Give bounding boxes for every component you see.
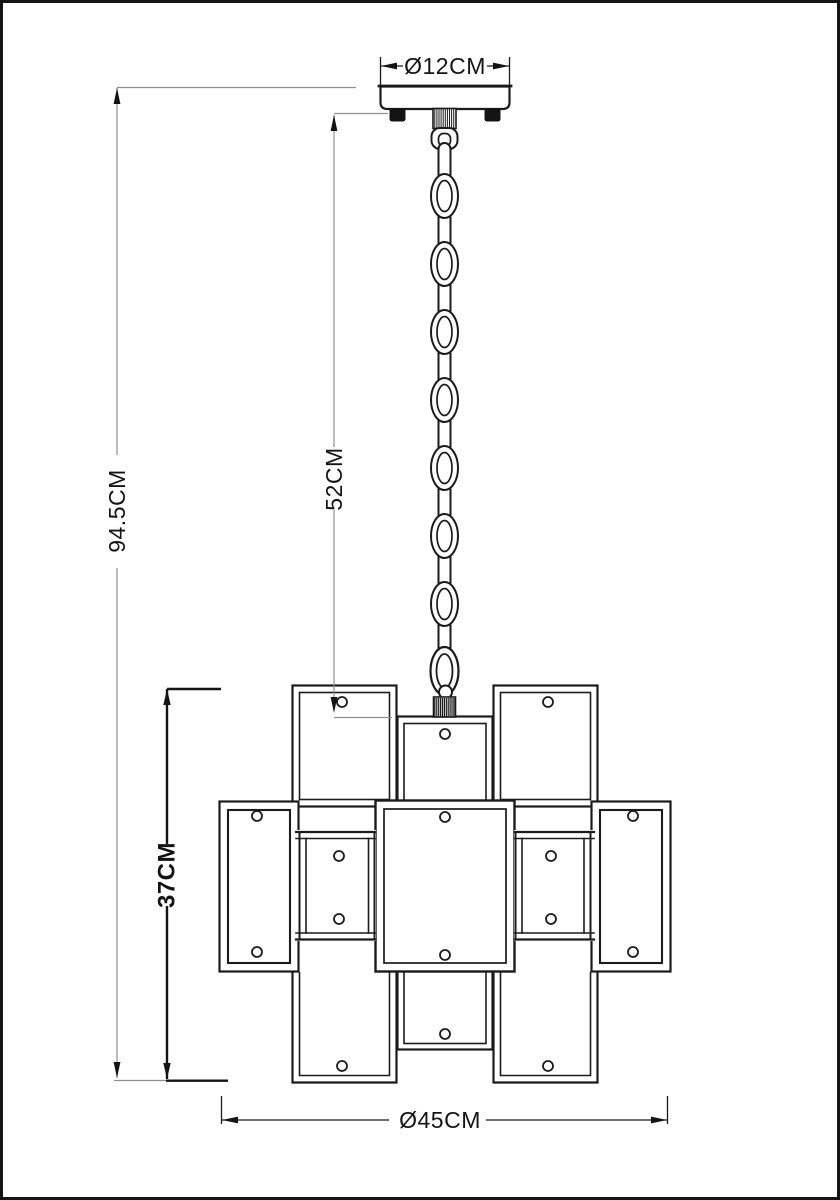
chandelier-body [220,686,671,1083]
canopy [379,86,511,149]
chain-link-large-inner [437,453,452,484]
arrow-up-chain [331,115,338,131]
frame-far-right [592,802,671,972]
drawing-page: Ø12CM 94.5CM 52CM 37CM Ø45CM [0,0,840,1200]
arrow-right-canopy [493,63,509,70]
canopy-screw-left [390,109,406,122]
chain-link-large-inner [437,181,452,212]
arrow-down-body-height [163,1063,170,1079]
arrow-left-canopy [381,63,397,70]
frame-middle-left [296,830,376,941]
arrow-up-overall [114,88,121,104]
arrow-right-body-width [651,1117,667,1124]
arrow-left-body-width [222,1117,238,1124]
chain [431,143,459,695]
frame-middle-right [514,830,594,941]
chain-link-large-inner [437,249,452,280]
label-overall-height: 94.5CM [104,469,130,553]
arrow-down-overall [114,1062,121,1078]
canopy-plate [381,87,510,110]
arrow-up-body-height [163,689,170,705]
frame-center-panel [376,801,515,972]
chain-connector-inner [437,654,453,688]
chain-link-large-inner [437,385,452,416]
chain-link-large-inner [437,317,452,348]
diagram-canvas: Ø12CM 94.5CM 52CM 37CM Ø45CM [0,0,840,1200]
label-body-diameter: Ø45CM [399,1107,481,1133]
label-canopy-diameter: Ø12CM [404,53,486,79]
chain-link-large-inner [437,589,452,620]
label-chain-drop: 52CM [321,447,347,510]
label-body-height: 37CM [154,842,181,908]
frame-far-left [220,802,299,972]
canopy-screw-right [485,109,501,122]
chain-link-large-inner [437,521,452,552]
